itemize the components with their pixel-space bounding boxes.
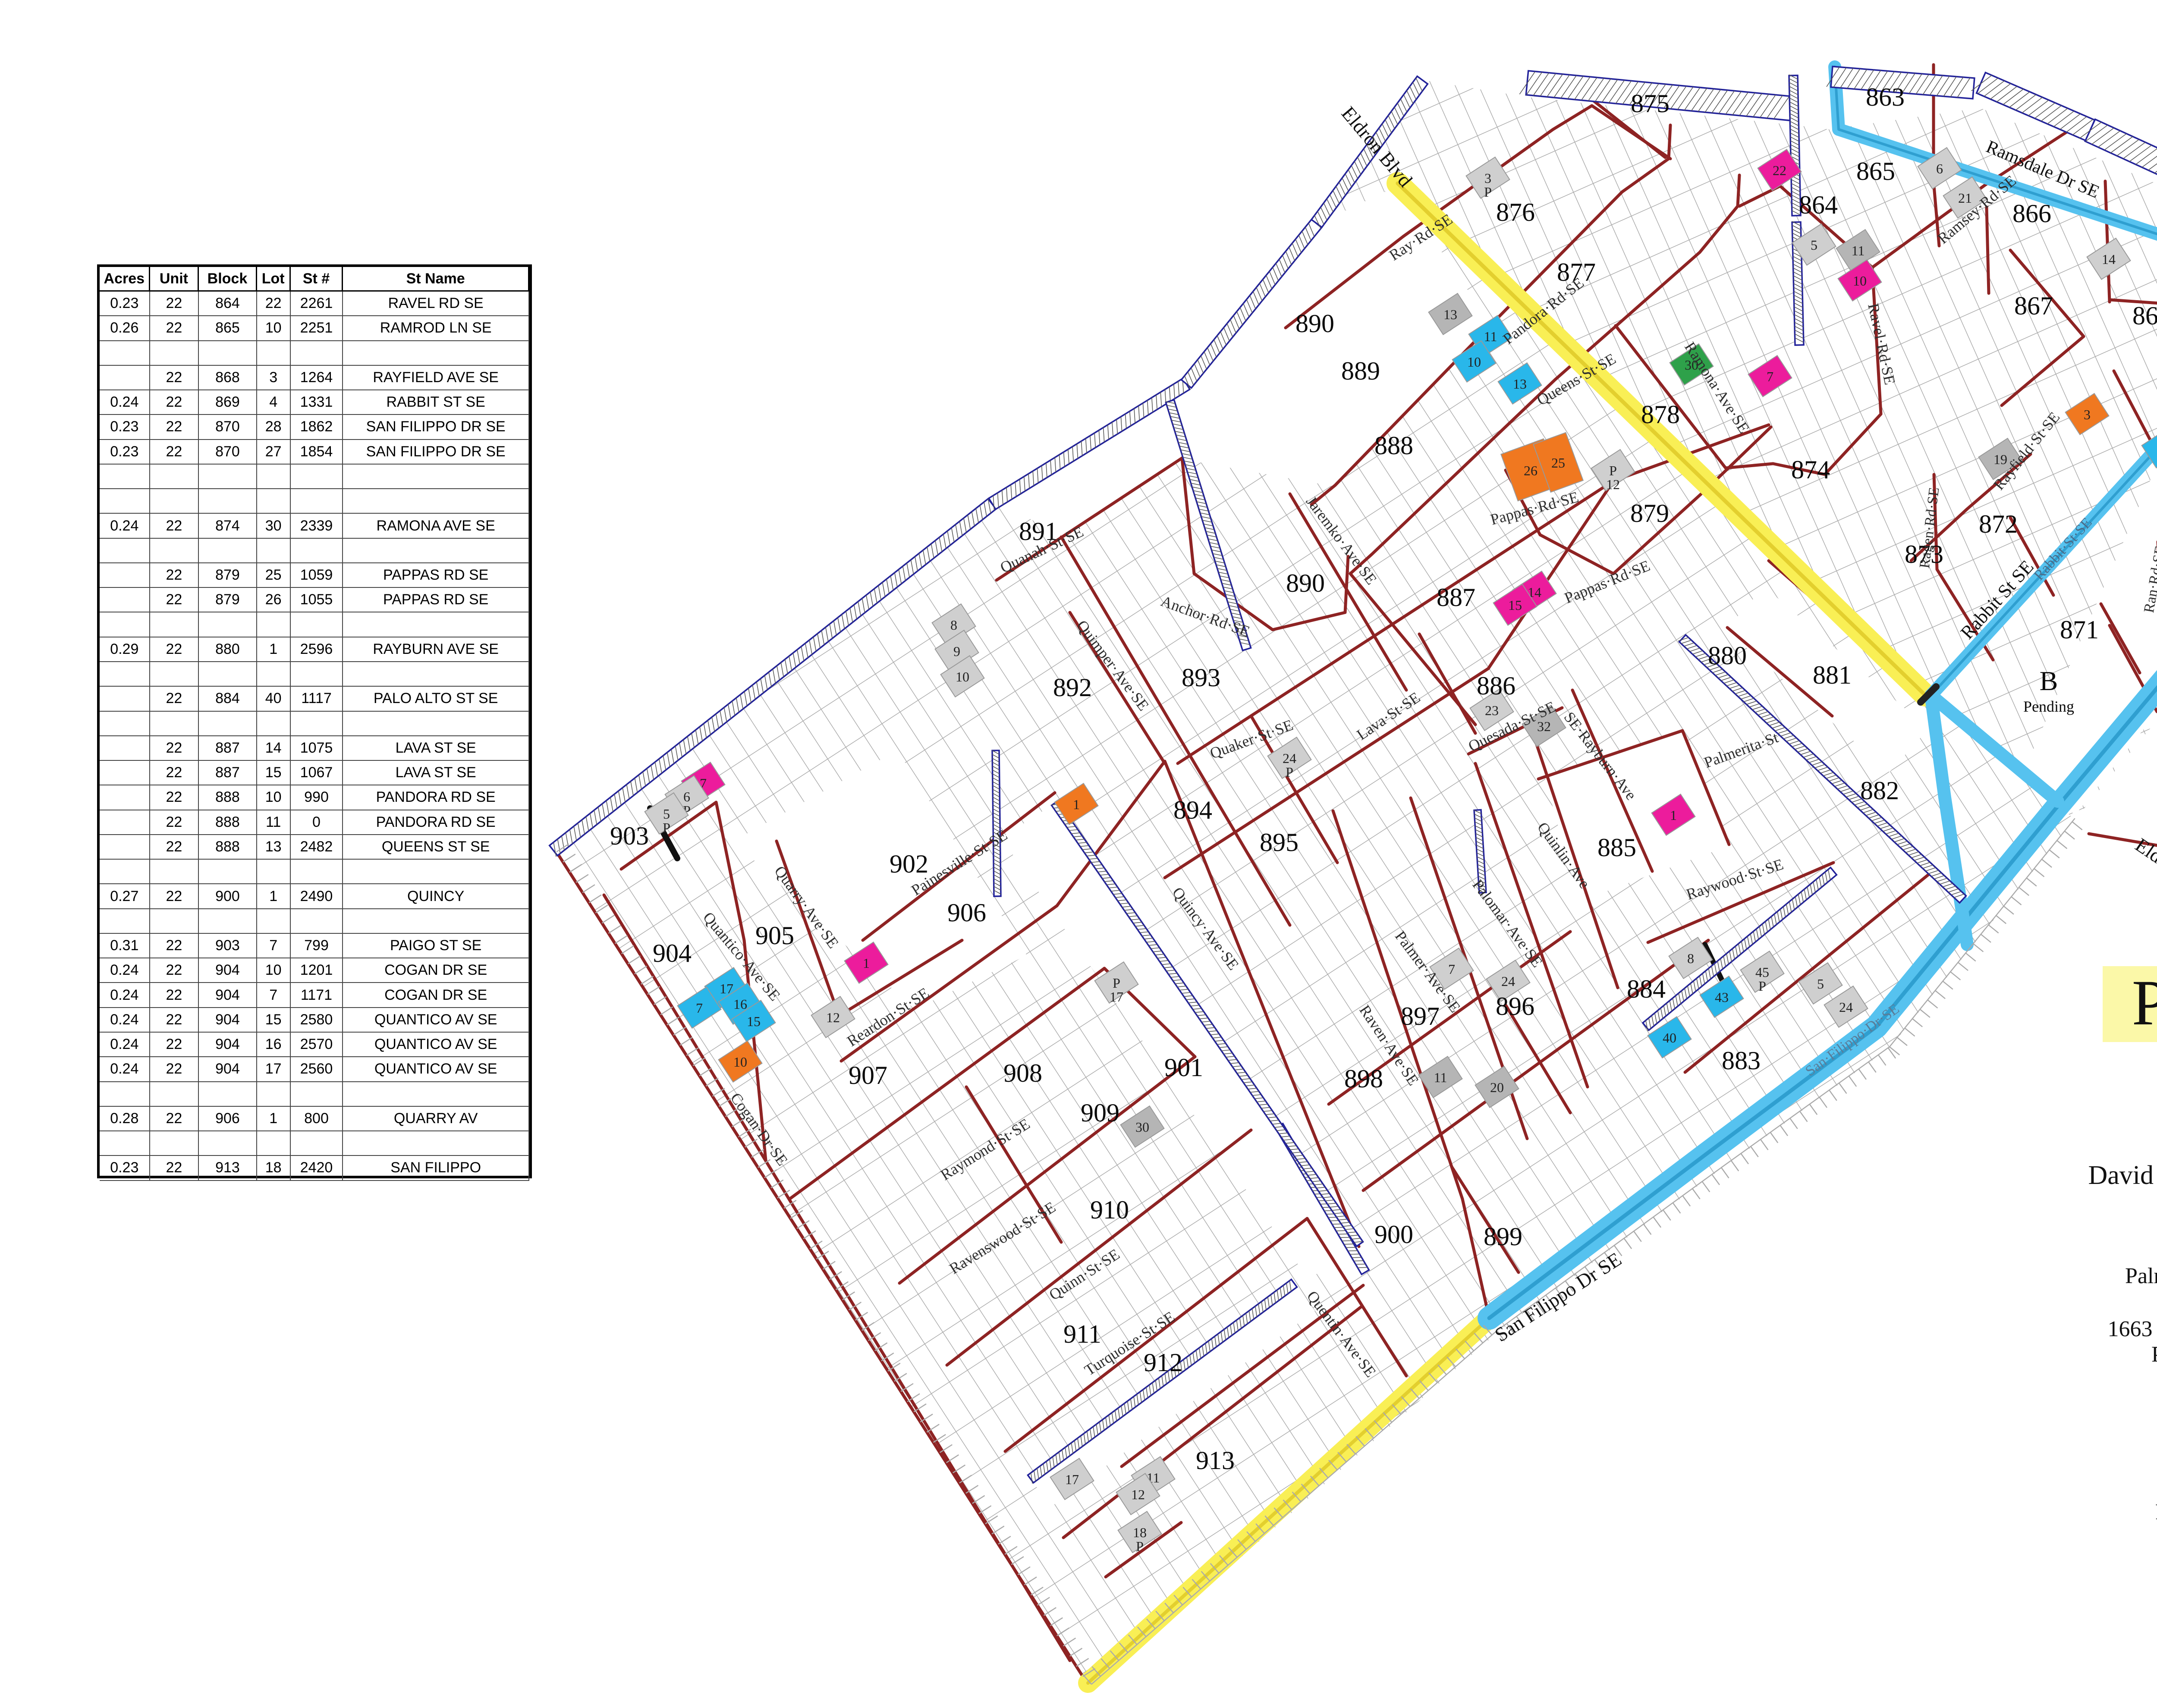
svg-text:895: 895 [1260,828,1299,857]
svg-text:912: 912 [1144,1348,1182,1377]
svg-text:902: 902 [890,850,928,878]
svg-text:15: 15 [747,1014,761,1029]
svg-text:913: 913 [1196,1446,1235,1475]
svg-text:887: 887 [1437,583,1475,612]
svg-text:868: 868 [2132,301,2157,330]
svg-text:17: 17 [1110,989,1123,1005]
svg-text:12: 12 [1131,1487,1145,1502]
svg-text:898: 898 [1344,1064,1383,1093]
svg-text:7: 7 [696,1000,703,1016]
svg-text:7: 7 [1448,961,1455,977]
svg-text:876: 876 [1496,198,1535,226]
svg-text:911: 911 [1063,1320,1101,1348]
svg-text:24: 24 [1839,999,1853,1015]
svg-text:14: 14 [2102,251,2116,267]
svg-text:P: P [1758,978,1766,994]
svg-text:903: 903 [610,822,649,850]
svg-text:879: 879 [1630,499,1669,527]
svg-text:890: 890 [1295,309,1334,338]
svg-text:8: 8 [950,617,957,633]
svg-text:901: 901 [1164,1053,1203,1082]
svg-text:1: 1 [1670,807,1677,823]
svg-text:866: 866 [2012,199,2051,228]
svg-text:878: 878 [1641,400,1680,429]
svg-text:884: 884 [1627,975,1666,1003]
svg-text:P: P [1609,463,1617,478]
svg-text:910: 910 [1090,1196,1129,1224]
svg-text:10: 10 [1467,354,1481,370]
svg-text:Pending: Pending [2023,698,2074,715]
svg-text:892: 892 [1053,673,1092,702]
svg-text:P: P [1136,1538,1144,1554]
svg-text:23: 23 [1485,703,1499,718]
svg-text:13: 13 [1513,376,1527,392]
svg-text:5: 5 [1817,976,1824,992]
svg-text:12: 12 [826,1010,840,1025]
svg-text:12: 12 [1606,477,1620,492]
svg-text:B: B [2040,666,2058,696]
svg-text:7: 7 [1767,369,1773,384]
svg-text:900: 900 [1374,1220,1413,1249]
svg-text:11: 11 [1434,1070,1447,1085]
svg-text:896: 896 [1496,992,1534,1020]
svg-text:P: P [1286,764,1293,780]
svg-text:886: 886 [1477,672,1516,700]
svg-text:897: 897 [1401,1002,1440,1030]
svg-text:11: 11 [1484,329,1497,344]
svg-text:893: 893 [1182,663,1220,692]
svg-text:6: 6 [1936,161,1943,176]
svg-text:15: 15 [1508,597,1522,613]
svg-text:18: 18 [1133,1525,1147,1540]
svg-text:885: 885 [1597,833,1636,862]
svg-text:17: 17 [1065,1472,1079,1487]
svg-text:25: 25 [1551,455,1565,471]
svg-text:890: 890 [1286,569,1325,597]
svg-text:5: 5 [663,806,670,822]
svg-text:883: 883 [1722,1046,1761,1075]
svg-text:16: 16 [733,996,747,1012]
svg-text:871: 871 [2060,615,2099,644]
svg-text:13: 13 [1443,307,1457,322]
svg-text:906: 906 [947,898,986,927]
svg-text:6: 6 [683,789,690,804]
svg-text:874: 874 [1791,455,1830,484]
svg-text:Eldron Blvd: Eldron Blvd [2132,834,2157,907]
svg-text:P: P [1113,975,1120,991]
svg-text:1: 1 [863,955,870,971]
svg-text:905: 905 [755,921,794,950]
svg-text:863: 863 [1866,83,1905,111]
svg-text:872: 872 [1979,510,2018,538]
svg-text:10: 10 [1853,273,1867,289]
svg-text:908: 908 [1003,1059,1042,1087]
svg-text:867: 867 [2014,292,2053,320]
svg-text:9: 9 [953,644,960,659]
svg-text:1: 1 [1073,797,1080,812]
svg-text:P: P [1484,184,1492,200]
svg-text:904: 904 [653,939,692,967]
svg-text:10: 10 [956,669,969,684]
svg-text:907: 907 [849,1061,887,1089]
svg-text:888: 888 [1374,431,1413,460]
svg-text:45: 45 [1755,964,1769,980]
svg-text:43: 43 [1715,989,1729,1005]
svg-text:22: 22 [1773,163,1786,178]
svg-text:24: 24 [1283,750,1296,766]
svg-text:864: 864 [1799,191,1838,219]
svg-text:865: 865 [1856,157,1895,185]
svg-text:5: 5 [1811,237,1817,253]
svg-text:24: 24 [1501,973,1515,989]
svg-text:20: 20 [1490,1080,1504,1095]
svg-text:880: 880 [1708,641,1747,670]
svg-text:21: 21 [1958,190,1972,206]
svg-text:889: 889 [1341,357,1380,385]
svg-text:10: 10 [733,1054,747,1070]
svg-text:40: 40 [1663,1030,1676,1046]
svg-text:8: 8 [1687,951,1694,966]
svg-text:3: 3 [2084,407,2091,422]
svg-text:875: 875 [1631,89,1670,118]
svg-text:909: 909 [1081,1099,1119,1127]
svg-text:30: 30 [1135,1119,1149,1135]
svg-text:881: 881 [1813,661,1852,689]
svg-text:882: 882 [1860,776,1899,805]
svg-text:P: P [663,820,670,835]
svg-text:3: 3 [1484,170,1491,186]
svg-text:899: 899 [1484,1222,1522,1251]
svg-text:26: 26 [1524,463,1538,478]
svg-text:11: 11 [1852,243,1865,258]
svg-text:894: 894 [1173,796,1212,824]
